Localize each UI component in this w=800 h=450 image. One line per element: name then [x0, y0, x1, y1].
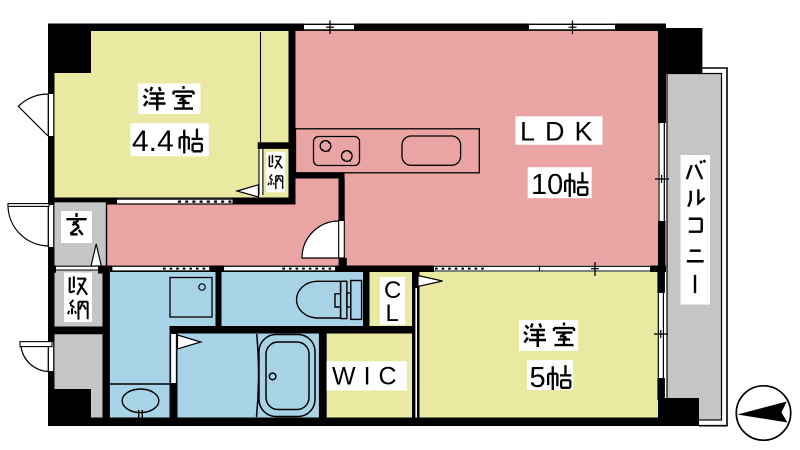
svg-text:10: 10	[531, 169, 563, 201]
svg-text:LDK: LDK	[520, 117, 603, 147]
svg-text:WIC: WIC	[332, 363, 405, 391]
svg-text:L: L	[386, 300, 399, 327]
svg-text:5: 5	[530, 362, 546, 394]
svg-text:4.4: 4.4	[132, 125, 174, 158]
